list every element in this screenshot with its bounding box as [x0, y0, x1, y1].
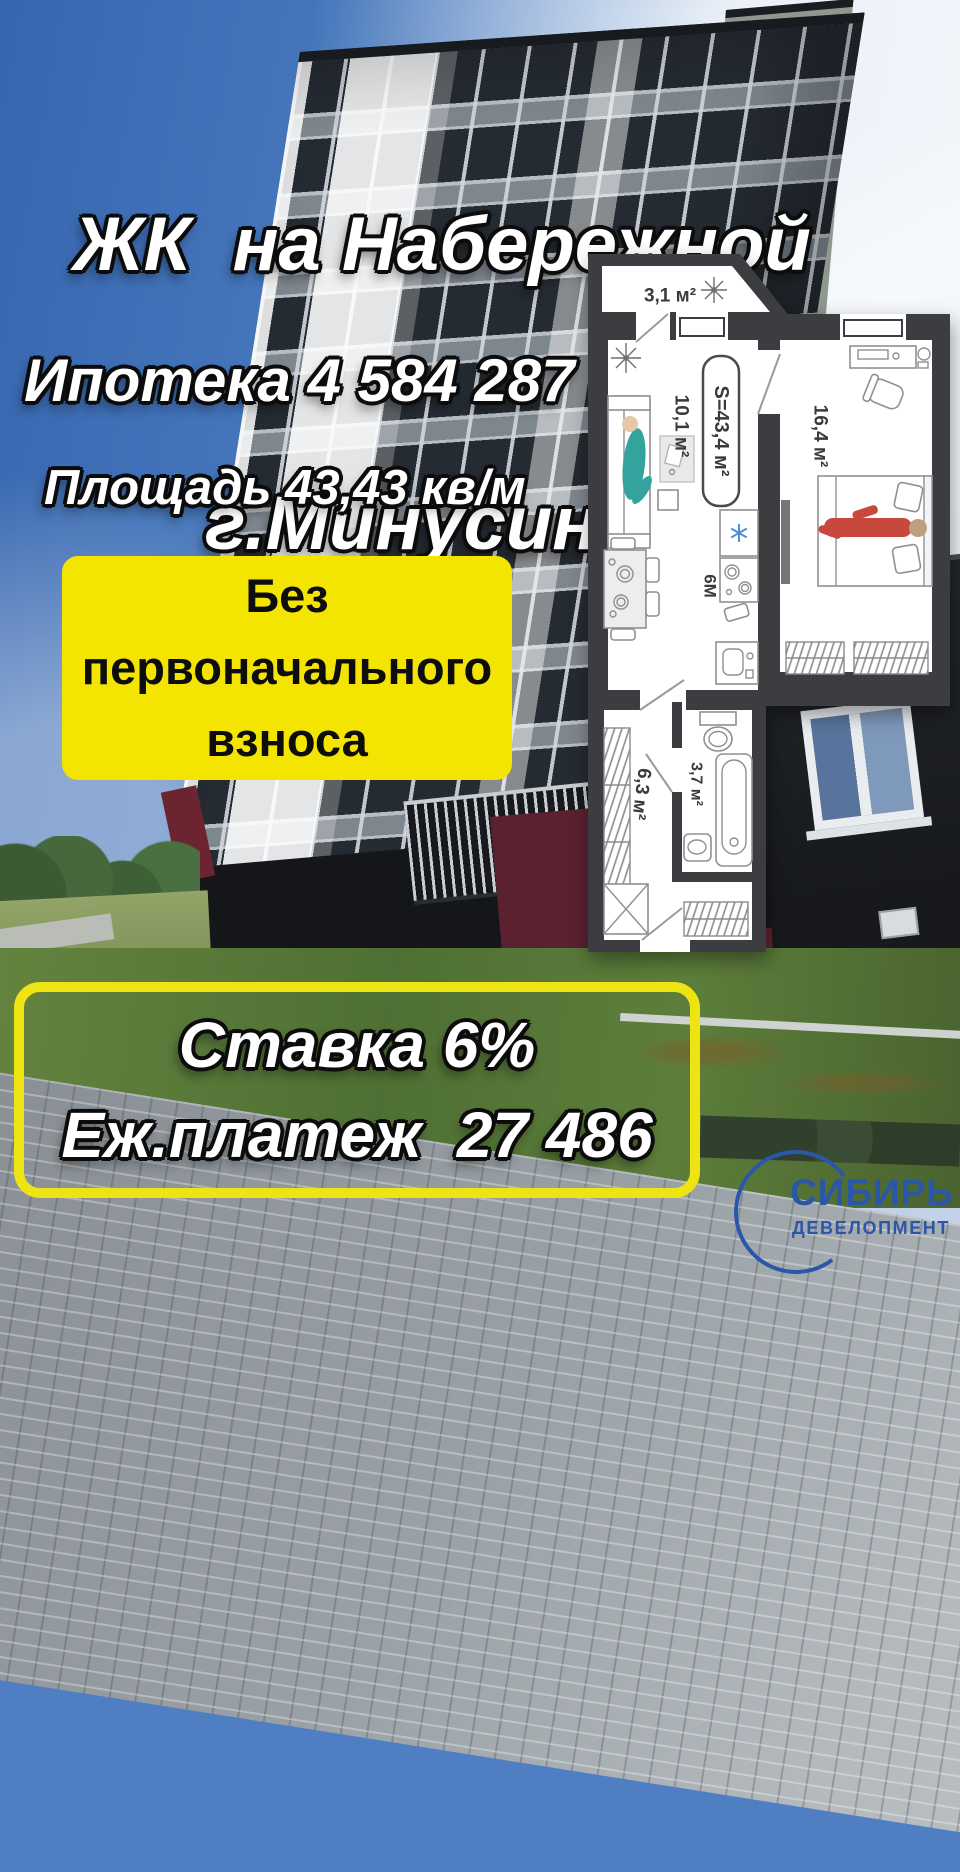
room-label-bathroom: 3,7 м²	[688, 762, 705, 806]
no-downpayment-box: Без первоначального взноса	[62, 556, 512, 780]
offer-line3: взноса	[206, 704, 368, 776]
room-label-living: 10,1 м²	[671, 395, 692, 458]
room-label-kitchen: 6М	[701, 574, 720, 598]
logo-title: СИБИРЬ	[790, 1172, 954, 1214]
fridge	[720, 510, 758, 556]
offer-line1: Без	[245, 560, 328, 632]
bathroom-sink	[684, 834, 711, 861]
side-table	[658, 490, 678, 510]
wardrobe	[604, 728, 630, 898]
room-label-balcony: 3,1 м²	[644, 286, 696, 307]
rate-payment-box: Ставка 6% Еж.платеж 27 486	[14, 982, 700, 1198]
hall-radiator	[684, 902, 748, 936]
logo-subtitle: ДЕВЕЛОПМЕНТ	[792, 1218, 950, 1239]
rate-text: Ставка 6%	[179, 1008, 535, 1082]
floor-plan: S=43,4 м² 3,1 м² 10,1 м² 16,4 м² 6М 6,3 …	[584, 250, 952, 952]
room-label-bedroom: 16,4 м²	[810, 405, 831, 468]
total-area-pill: S=43,4 м²	[703, 356, 739, 506]
bathtub	[716, 754, 752, 866]
total-area-label: S=43,4 м²	[710, 386, 732, 477]
area-text: Площадь 43,43 кв/м	[44, 460, 526, 516]
developer-logo: СИБИРЬ ДЕВЕЛОПМЕНТ	[726, 1146, 954, 1274]
offer-line2: первоначального	[82, 632, 493, 704]
bedroom-radiators	[786, 642, 928, 674]
stove	[720, 558, 758, 602]
mortgage-text: Ипотека 4 584 287	[24, 346, 575, 415]
storage-box	[604, 884, 648, 934]
kitchen-sink	[716, 642, 758, 684]
payment-text: Еж.платеж 27 486	[61, 1098, 652, 1172]
